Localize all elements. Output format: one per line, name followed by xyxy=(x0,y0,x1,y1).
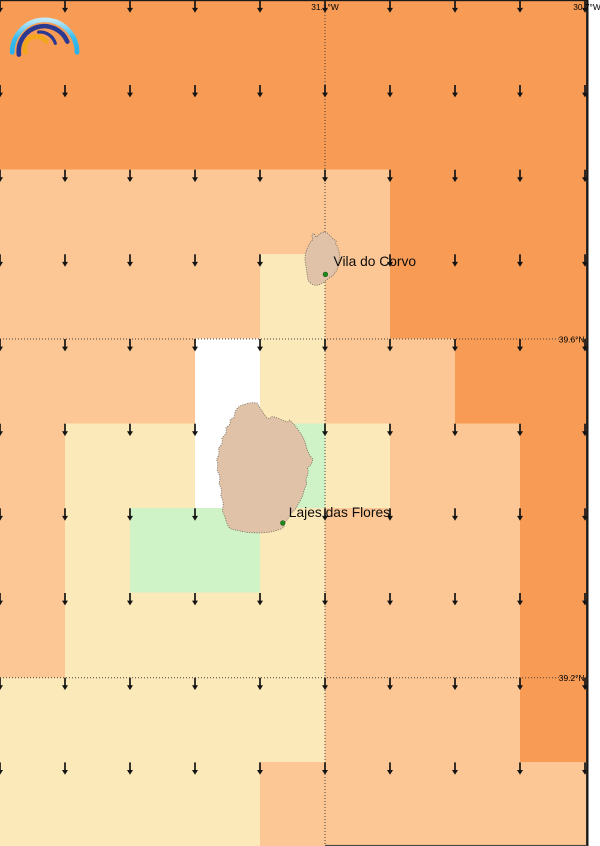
svg-text:Lajes das Flores: Lajes das Flores xyxy=(289,505,390,520)
svg-text:Vila do Corvo: Vila do Corvo xyxy=(334,254,417,269)
svg-text:39.6°N: 39.6°N xyxy=(559,334,585,344)
svg-text:30.7°W: 30.7°W xyxy=(573,2,600,12)
svg-text:39.2°N: 39.2°N xyxy=(559,673,585,683)
